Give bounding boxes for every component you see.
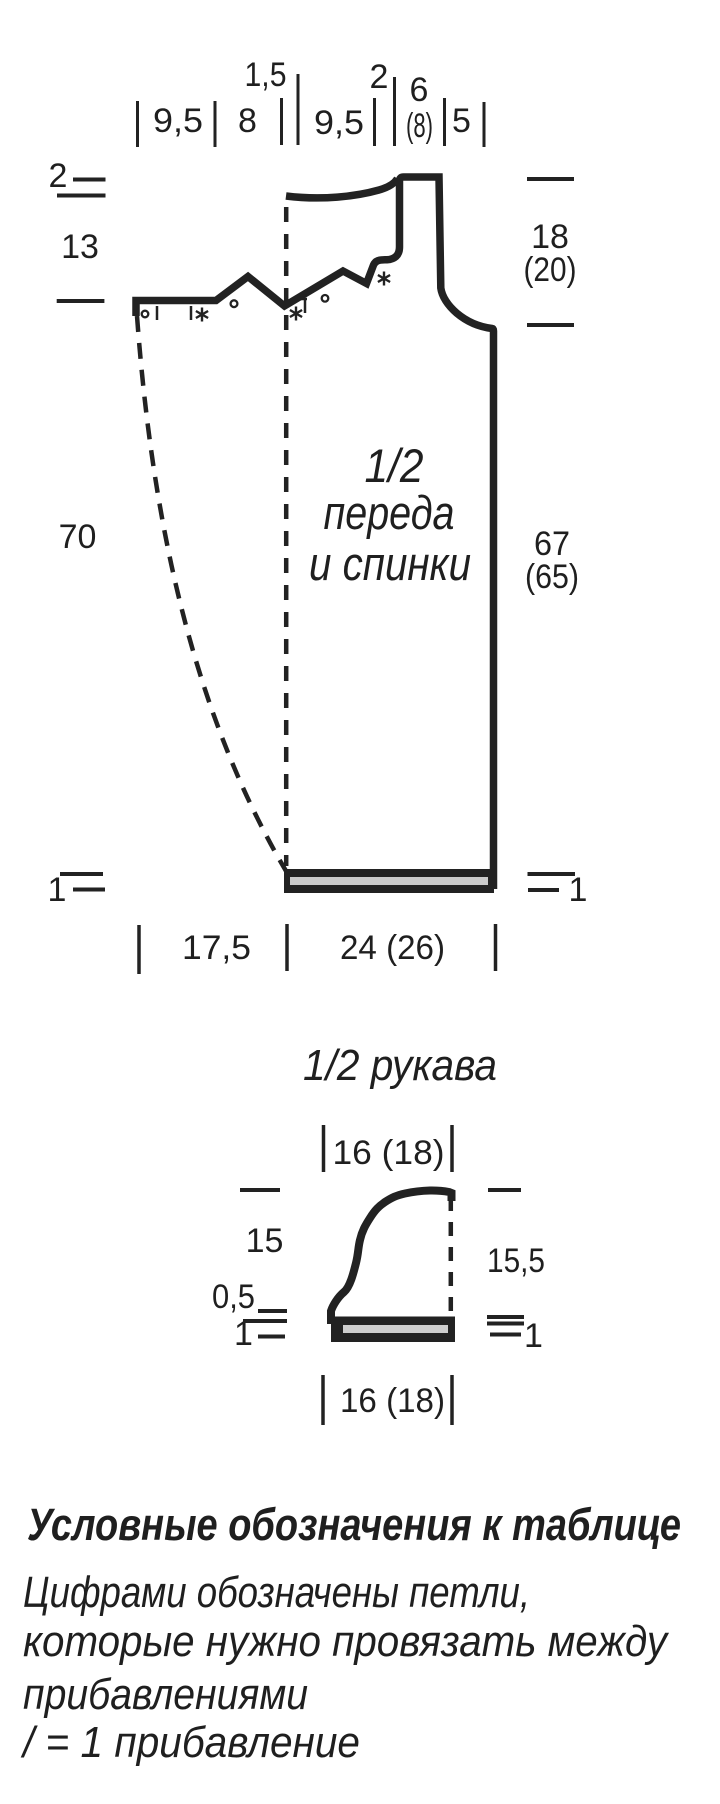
svg-text:5: 5 <box>452 102 471 140</box>
svg-text:(65): (65) <box>525 558 579 596</box>
svg-text:(8): (8) <box>406 107 433 145</box>
svg-text:1/2: 1/2 <box>365 439 424 492</box>
svg-text:6: 6 <box>410 71 429 109</box>
svg-text:15: 15 <box>246 1222 284 1260</box>
svg-text:1: 1 <box>48 871 67 909</box>
svg-text:70: 70 <box>59 518 97 556</box>
svg-text:8: 8 <box>238 102 257 140</box>
svg-text:2: 2 <box>370 58 389 96</box>
svg-text:Условные обозначения к таблице: Условные обозначения к таблице <box>27 1499 681 1550</box>
svg-text:1/2 рукава: 1/2 рукава <box>303 1041 497 1090</box>
svg-text:17,5: 17,5 <box>182 929 251 967</box>
svg-text:16 (18): 16 (18) <box>333 1134 445 1172</box>
svg-text:15,5: 15,5 <box>487 1242 545 1280</box>
svg-text:и спинки: и спинки <box>309 537 471 590</box>
svg-text:2: 2 <box>49 157 68 195</box>
svg-text:(20): (20) <box>524 251 577 289</box>
svg-text:1: 1 <box>524 1317 543 1355</box>
svg-text:24 (26): 24 (26) <box>340 929 445 967</box>
svg-text:которые нужно провязать между: которые нужно провязать между <box>23 1617 670 1666</box>
svg-text:прибавлениями: прибавлениями <box>23 1670 308 1719</box>
svg-text:16 (18): 16 (18) <box>340 1382 445 1420</box>
svg-text:переда: переда <box>324 486 455 539</box>
svg-text:1,5: 1,5 <box>245 56 287 94</box>
svg-text:13: 13 <box>61 228 99 266</box>
svg-text:/ = 1 прибавление: / = 1 прибавление <box>20 1718 360 1767</box>
svg-text:9,5: 9,5 <box>314 104 364 142</box>
svg-text:0,5: 0,5 <box>212 1278 255 1316</box>
svg-text:Цифрами обозначены петли,: Цифрами обозначены петли, <box>23 1568 530 1617</box>
svg-text:9,5: 9,5 <box>153 102 203 140</box>
svg-text:1: 1 <box>569 871 588 909</box>
